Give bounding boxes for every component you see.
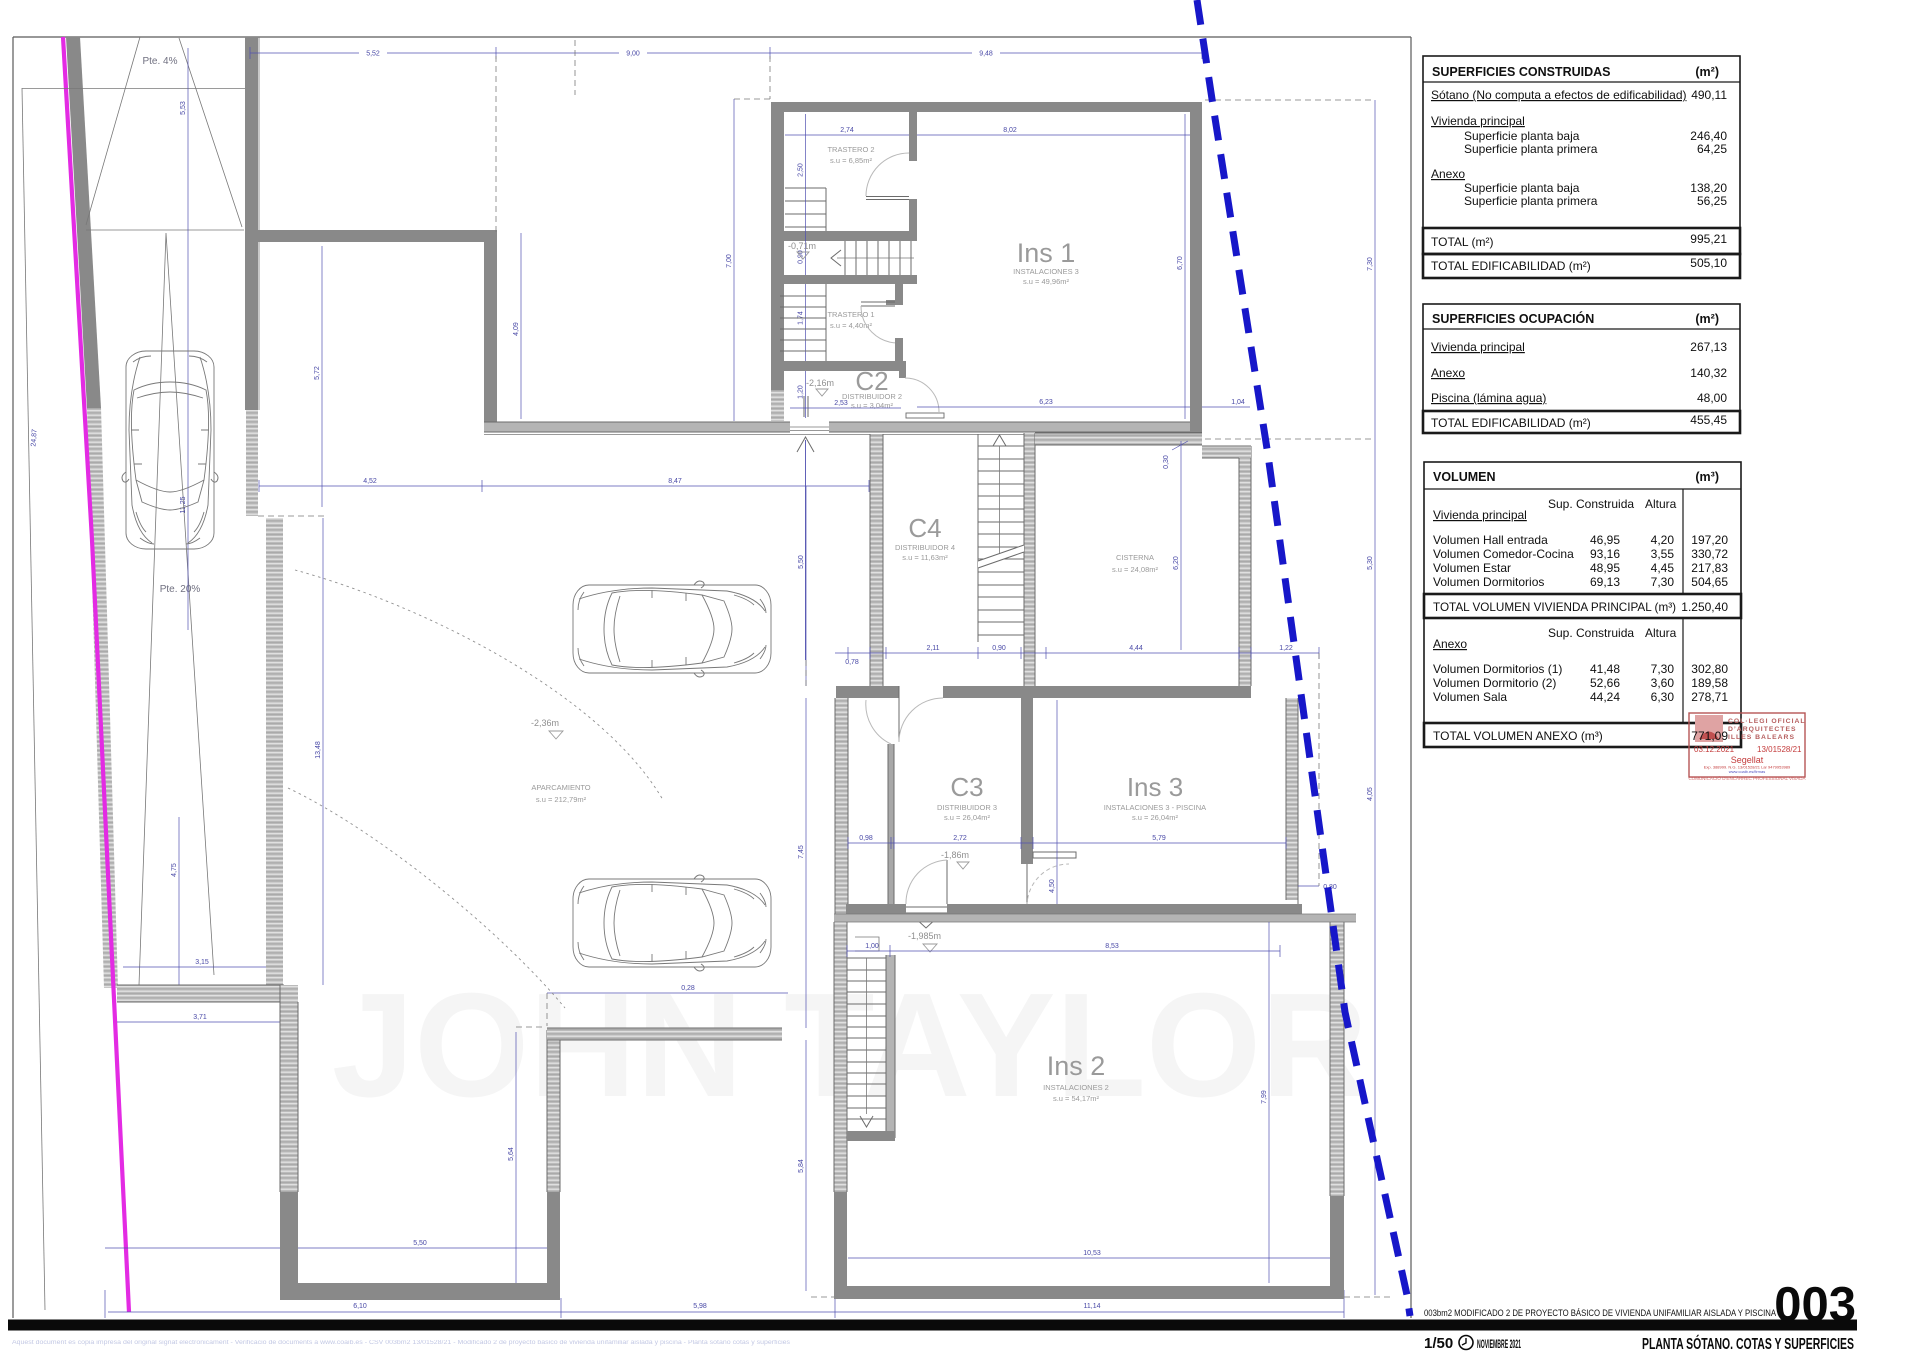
svg-text:Piscina (lámina agua): Piscina (lámina agua)	[1431, 391, 1546, 405]
svg-text:-1,985m: -1,985m	[908, 931, 941, 941]
svg-text:s.u = 24,08m²: s.u = 24,08m²	[1112, 565, 1159, 574]
svg-text:Aquest document es copia impre: Aquest document es copia impresa del ori…	[12, 1340, 790, 1346]
svg-text:64,25: 64,25	[1697, 142, 1727, 156]
svg-text:1,04: 1,04	[1231, 399, 1245, 406]
svg-text:138,20: 138,20	[1690, 181, 1727, 195]
svg-text:6,70: 6,70	[1177, 256, 1184, 270]
svg-text:COL·LEGI OFICIAL: COL·LEGI OFICIAL	[1728, 718, 1806, 725]
svg-text:Volumen Dormitorio (2): Volumen Dormitorio (2)	[1433, 676, 1556, 690]
svg-text:TRASTERO 1: TRASTERO 1	[827, 310, 874, 319]
svg-text:DISTRIBUIDOR 2: DISTRIBUIDOR 2	[842, 392, 902, 401]
svg-text:44,24: 44,24	[1590, 690, 1620, 704]
svg-text:504,65: 504,65	[1691, 575, 1728, 589]
svg-text:03.12.2021: 03.12.2021	[1694, 745, 1735, 754]
svg-text:41,48: 41,48	[1590, 662, 1620, 676]
svg-text:7,45: 7,45	[798, 845, 805, 859]
svg-text:Ins 2: Ins 2	[1047, 1051, 1106, 1081]
svg-text:0,78: 0,78	[845, 659, 859, 666]
svg-text:ILLES BALEARS: ILLES BALEARS	[1728, 734, 1795, 741]
svg-text:NOVIEMBRE 2021: NOVIEMBRE 2021	[1477, 1337, 1521, 1351]
svg-text:Superficie planta primera: Superficie planta primera	[1464, 194, 1598, 208]
svg-text:56,25: 56,25	[1697, 194, 1727, 208]
svg-text:2,50: 2,50	[798, 163, 805, 177]
svg-text:5,98: 5,98	[693, 1303, 707, 1310]
svg-text:8,02: 8,02	[1003, 127, 1017, 134]
svg-text:C3: C3	[950, 772, 983, 802]
svg-text:4,44: 4,44	[1129, 645, 1143, 652]
svg-text:PLANTA SÓTANO. COTAS Y SUPERFI: PLANTA SÓTANO. COTAS Y SUPERFICIES	[1642, 1335, 1854, 1353]
svg-text:1,20: 1,20	[798, 385, 805, 399]
svg-text:330,72: 330,72	[1691, 547, 1728, 561]
svg-text:189,58: 189,58	[1691, 676, 1728, 690]
svg-text:Segellat: Segellat	[1731, 755, 1764, 765]
svg-text:7,30: 7,30	[1651, 575, 1675, 589]
svg-text:2,74: 2,74	[840, 127, 854, 134]
svg-text:INSTALACIONES 2: INSTALACIONES 2	[1043, 1083, 1109, 1092]
svg-text:Anexo: Anexo	[1431, 366, 1465, 380]
svg-text:DISTRIBUIDOR 4: DISTRIBUIDOR 4	[895, 543, 955, 552]
svg-text:Superficie planta baja: Superficie planta baja	[1464, 129, 1580, 143]
svg-text:C4: C4	[908, 513, 941, 543]
svg-text:TRASTERO 2: TRASTERO 2	[827, 145, 874, 154]
svg-text:8,47: 8,47	[668, 478, 682, 485]
svg-text:5,50: 5,50	[413, 1240, 427, 1247]
svg-text:4,45: 4,45	[1651, 561, 1675, 575]
svg-text:5,79: 5,79	[1152, 835, 1166, 842]
svg-text:505,10: 505,10	[1690, 256, 1727, 270]
svg-text:TOTAL (m²): TOTAL (m²)	[1431, 235, 1493, 249]
svg-text:Anexo: Anexo	[1431, 167, 1465, 181]
svg-text:Vivienda principal: Vivienda principal	[1433, 508, 1527, 522]
svg-text:TOTAL VOLUMEN ANEXO (m³): TOTAL VOLUMEN ANEXO (m³)	[1433, 729, 1603, 743]
svg-text:4,75: 4,75	[171, 863, 178, 877]
svg-text:-2,16m: -2,16m	[806, 378, 834, 388]
svg-text:003bm2 MODIFICADO 2 DE PROYE: 003bm2 MODIFICADO 2 DE PROYECTO BÁSICO D…	[1424, 1308, 1777, 1319]
svg-text:69,13: 69,13	[1590, 575, 1620, 589]
svg-text:11,14: 11,14	[1084, 1303, 1101, 1310]
svg-text:s.u = 3,04m²: s.u = 3,04m²	[851, 401, 893, 410]
svg-text:Sup. Construida: Sup. Construida	[1548, 626, 1634, 640]
svg-text:6,23: 6,23	[1039, 399, 1053, 406]
svg-text:Altura: Altura	[1645, 497, 1677, 511]
svg-text:D’ARQUITECTES: D’ARQUITECTES	[1728, 726, 1797, 733]
svg-text:-2,36m: -2,36m	[531, 718, 559, 728]
svg-text:TOTAL VOLUMEN VIVIENDA PRINCIP: TOTAL VOLUMEN VIVIENDA PRINCIPAL (m³)	[1433, 600, 1676, 614]
svg-text:5,53: 5,53	[180, 101, 187, 115]
svg-text:Volumen Dormitorios: Volumen Dormitorios	[1433, 575, 1544, 589]
svg-text:267,13: 267,13	[1690, 340, 1727, 354]
svg-text:52,66: 52,66	[1590, 676, 1620, 690]
svg-text:0,28: 0,28	[681, 985, 695, 992]
svg-text:197,20: 197,20	[1691, 533, 1728, 547]
svg-text:SUPERFICIES CONSTRUIDAS: SUPERFICIES CONSTRUIDAS	[1432, 65, 1611, 79]
svg-text:4,20: 4,20	[1651, 533, 1675, 547]
svg-text:JOHN TAYLOR: JOHN TAYLOR	[332, 963, 1368, 1128]
svg-text:www.coaib.es/firmas: www.coaib.es/firmas	[1729, 769, 1765, 774]
svg-text:2,72: 2,72	[953, 835, 967, 842]
svg-text:93,16: 93,16	[1590, 547, 1620, 561]
svg-text:TOTAL EDIFICABILIDAD (m²): TOTAL EDIFICABILIDAD (m²)	[1431, 259, 1591, 273]
svg-text:13,48: 13,48	[315, 741, 322, 759]
svg-text:9,00: 9,00	[626, 51, 640, 58]
svg-text:3,71: 3,71	[193, 1014, 207, 1021]
svg-text:Anexo: Anexo	[1433, 637, 1467, 651]
svg-text:DISTRIBUIDOR 3: DISTRIBUIDOR 3	[937, 803, 997, 812]
svg-text:6,20: 6,20	[1173, 556, 1180, 570]
svg-text:771,09: 771,09	[1691, 729, 1728, 743]
svg-text:Vivienda principal: Vivienda principal	[1431, 340, 1525, 354]
svg-text:Sótano (No computa a efectos d: Sótano (No computa a efectos de edificab…	[1431, 88, 1687, 102]
svg-text:CISTERNA: CISTERNA	[1116, 553, 1154, 562]
svg-text:1,22: 1,22	[1279, 645, 1293, 652]
svg-text:s.u = 26,04m²: s.u = 26,04m²	[944, 813, 991, 822]
svg-text:24,87: 24,87	[30, 429, 38, 447]
svg-text:5,30: 5,30	[1367, 556, 1374, 570]
svg-text:Volumen Estar: Volumen Estar	[1433, 561, 1511, 575]
svg-text:48,95: 48,95	[1590, 561, 1620, 575]
svg-text:5,72: 5,72	[314, 366, 321, 380]
svg-text:INSTALACIONES 3: INSTALACIONES 3	[1013, 267, 1079, 276]
svg-text:3,15: 3,15	[195, 959, 209, 966]
svg-text:INSTALACIONES 3 - PISCINA: INSTALACIONES 3 - PISCINA	[1104, 803, 1206, 812]
svg-text:5,50: 5,50	[798, 555, 805, 569]
svg-text:7,30: 7,30	[1367, 257, 1374, 271]
svg-text:5,64: 5,64	[508, 1147, 515, 1161]
svg-text:5,52: 5,52	[366, 51, 380, 58]
svg-text:7,30: 7,30	[1651, 662, 1675, 676]
svg-text:490,11: 490,11	[1691, 88, 1727, 102]
svg-text:Superficie planta baja: Superficie planta baja	[1464, 181, 1580, 195]
svg-text:COMUNICACIÓ D’ENCÀRREC PROFESS: COMUNICACIÓ D’ENCÀRREC PROFESSIONAL VISA…	[1688, 775, 1805, 781]
svg-text:48,00: 48,00	[1697, 391, 1727, 405]
svg-text:8,53: 8,53	[1105, 943, 1119, 950]
svg-text:SUPERFICIES OCUPACIÓN: SUPERFICIES OCUPACIÓN	[1432, 311, 1594, 326]
svg-text:1,00: 1,00	[865, 943, 879, 950]
svg-text:Ins 1: Ins 1	[1017, 238, 1076, 268]
svg-text:6,30: 6,30	[1651, 690, 1675, 704]
svg-text:3,60: 3,60	[1651, 676, 1675, 690]
svg-text:278,71: 278,71	[1691, 690, 1728, 704]
svg-text:(m³): (m³)	[1695, 470, 1719, 484]
svg-text:s.u = 212,79m²: s.u = 212,79m²	[536, 795, 587, 804]
svg-text:Altura: Altura	[1645, 626, 1677, 640]
svg-text:Ins 3: Ins 3	[1127, 772, 1183, 802]
svg-text:2,53: 2,53	[834, 400, 848, 407]
svg-text:Pte. 4%: Pte. 4%	[142, 56, 177, 67]
svg-text:-1,86m: -1,86m	[941, 850, 969, 860]
svg-text:2,11: 2,11	[926, 645, 939, 652]
svg-text:(m²): (m²)	[1695, 65, 1719, 79]
svg-text:5,84: 5,84	[798, 1159, 805, 1173]
svg-text:APARCAMIENTO: APARCAMIENTO	[531, 783, 590, 792]
svg-text:Volumen Hall entrada: Volumen Hall entrada	[1433, 533, 1548, 547]
svg-text:s.u = 49,96m²: s.u = 49,96m²	[1023, 277, 1070, 286]
svg-text:246,40: 246,40	[1690, 129, 1727, 143]
svg-text:3,55: 3,55	[1651, 547, 1675, 561]
svg-text:10,53: 10,53	[1083, 1250, 1101, 1257]
svg-text:Volumen Dormitorios (1): Volumen Dormitorios (1)	[1433, 662, 1562, 676]
svg-text:0,90: 0,90	[992, 645, 1006, 652]
svg-text:s.u = 54,17m²: s.u = 54,17m²	[1053, 1094, 1100, 1103]
svg-text:455,45: 455,45	[1690, 413, 1727, 427]
svg-text:217,83: 217,83	[1691, 561, 1728, 575]
svg-text:140,32: 140,32	[1690, 366, 1727, 380]
svg-text:1.250,40: 1.250,40	[1681, 600, 1728, 614]
svg-text:4,50: 4,50	[1049, 879, 1056, 893]
svg-text:46,95: 46,95	[1590, 533, 1620, 547]
svg-text:9,48: 9,48	[979, 51, 993, 58]
svg-text:4,52: 4,52	[363, 478, 377, 485]
svg-text:VOLUMEN: VOLUMEN	[1433, 470, 1496, 484]
svg-text:s.u = 26,04m²: s.u = 26,04m²	[1132, 813, 1179, 822]
svg-text:Pte. 20%: Pte. 20%	[160, 584, 201, 595]
svg-text:Superficie planta primera: Superficie planta primera	[1464, 142, 1598, 156]
svg-text:7,99: 7,99	[1261, 1090, 1268, 1104]
svg-text:Sup. Construida: Sup. Construida	[1548, 497, 1634, 511]
svg-text:0,98: 0,98	[859, 835, 873, 842]
svg-text:995,21: 995,21	[1690, 232, 1727, 246]
svg-text:0,30: 0,30	[1163, 455, 1170, 469]
svg-text:302,80: 302,80	[1691, 662, 1728, 676]
svg-text:Volumen Sala: Volumen Sala	[1433, 690, 1507, 704]
svg-text:Vivienda principal: Vivienda principal	[1431, 114, 1525, 128]
svg-text:6,10: 6,10	[353, 1303, 367, 1310]
svg-text:13/01528/21: 13/01528/21	[1757, 745, 1802, 754]
svg-text:(m²): (m²)	[1695, 312, 1719, 326]
svg-text:1/50: 1/50	[1424, 1335, 1453, 1352]
svg-text:-0,71m: -0,71m	[788, 241, 816, 251]
svg-text:s.u = 11,63m²: s.u = 11,63m²	[902, 553, 948, 562]
svg-text:Volumen Comedor-Cocina: Volumen Comedor-Cocina	[1433, 547, 1574, 561]
svg-text:7,00: 7,00	[726, 254, 733, 268]
svg-text:4,09: 4,09	[513, 322, 520, 336]
svg-text:11,25: 11,25	[180, 496, 187, 513]
svg-text:4,05: 4,05	[1367, 787, 1374, 801]
svg-text:TOTAL EDIFICABILIDAD (m²): TOTAL EDIFICABILIDAD (m²)	[1431, 416, 1591, 430]
svg-text:s.u = 6,85m²: s.u = 6,85m²	[830, 156, 872, 165]
